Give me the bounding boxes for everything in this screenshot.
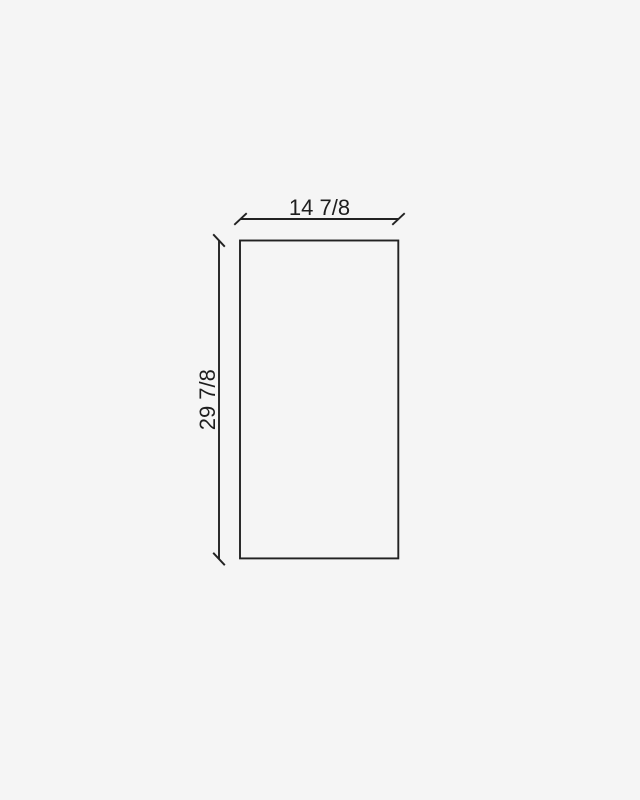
svg-text:14 7/8: 14 7/8 (289, 195, 350, 220)
svg-text:29 7/8: 29 7/8 (195, 369, 220, 430)
